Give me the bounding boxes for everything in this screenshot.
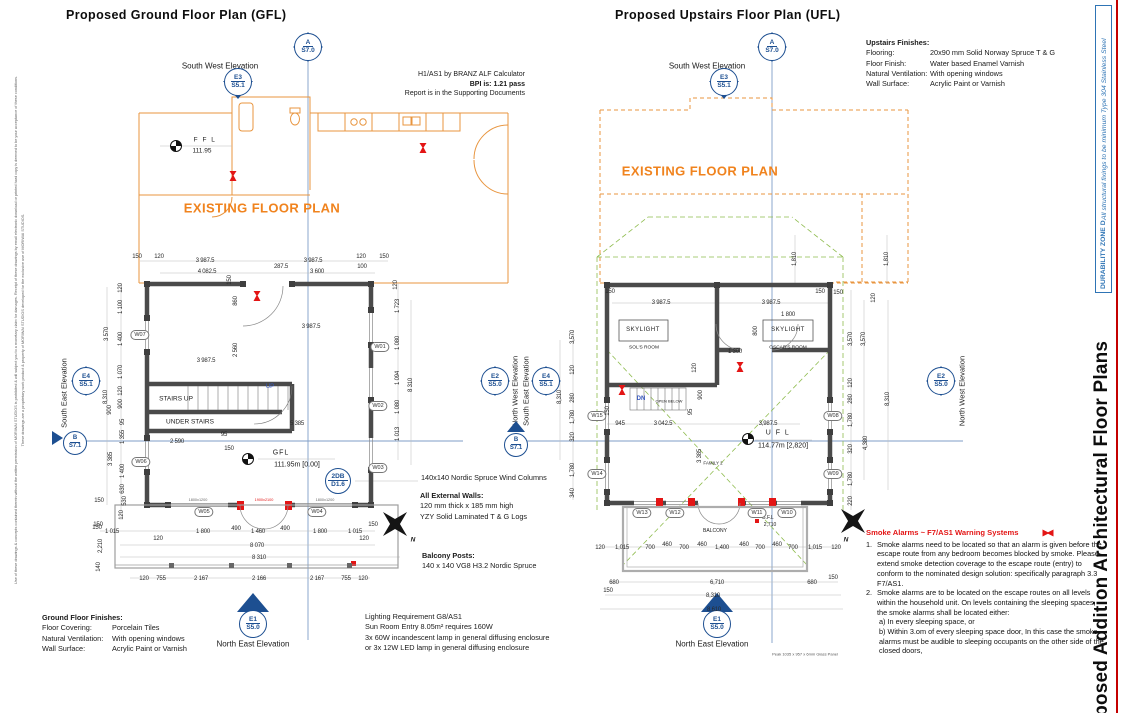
marker-label: A: [303, 39, 314, 47]
dimension-label: 3 987.5: [762, 300, 781, 306]
dimension-label: 3 600: [310, 269, 324, 275]
dimension-label: 280: [848, 394, 854, 403]
dimension-label: 2 167: [194, 576, 208, 582]
dimension-label: 287.5: [274, 264, 288, 270]
detail-marker-2db: 2DBD1.6: [323, 466, 353, 496]
dimension-label: 150: [132, 254, 141, 260]
finish-value: 20x90 mm Solid Norway Spruce T & G: [930, 48, 1055, 58]
family-room-label: FAMILY 2: [703, 461, 722, 466]
finish-row: Flooring:20x90 mm Solid Norway Spruce T …: [866, 48, 1055, 58]
window-size-label: 1800x1200: [316, 498, 335, 502]
lighting-note: Lighting Requirement G8/AS1 Sun Room Ent…: [365, 612, 549, 653]
drawing-sheet: Use of these drawings & concepts contain…: [0, 0, 1121, 713]
dimension-label: 3 987.5: [196, 258, 215, 264]
dimension-label: 95: [120, 419, 126, 425]
finish-row: Wall Surface:Acrylic Paint or Varnish: [42, 644, 187, 654]
dimension-label: 120: [393, 280, 399, 289]
marker-circle: 2DBD1.6: [325, 468, 351, 494]
elevation-label-ne: North East Elevation: [217, 640, 290, 649]
dimension-label: 3 385: [108, 452, 114, 466]
dimension-label: 460: [662, 542, 671, 548]
dimension-label: 2 166: [252, 576, 266, 582]
marker-circle: E3S5.1: [710, 68, 738, 96]
dimension-label: 1,780: [570, 463, 576, 477]
marker-sheet: D1.6: [331, 481, 345, 489]
finish-value: Water based Enamel Varnish: [930, 59, 1024, 69]
window-label-w02: W02: [368, 401, 387, 411]
dimension-label: 150: [227, 275, 233, 284]
elevation-label-nw: North West Elevation: [958, 356, 967, 426]
dimension-label: 120: [831, 545, 840, 551]
smoke-alarms-note: Smoke Alarms ~ F7/AS1 Warning Systems 1.…: [866, 528, 1104, 656]
balcony-posts-line: 140 x 140 VG8 H3.2 Nordic Spruce: [422, 561, 536, 571]
durability-zone-label: DURABILITY ZONE D: [1100, 220, 1107, 289]
elevation-marker-e4: E4S5.1: [71, 366, 101, 396]
dimension-label: 150: [605, 289, 614, 295]
dimension-label: 8,310: [103, 390, 109, 404]
dimension-label: 150: [605, 406, 611, 415]
dimension-label: 1 400: [120, 464, 126, 478]
gfl-level-icon: [242, 453, 254, 465]
gfl-balcony-posts: [169, 563, 352, 568]
sols-room-label: SOL'S ROOM: [629, 346, 659, 351]
dimension-label: 700: [788, 545, 797, 551]
dimension-label: 3,570: [861, 332, 867, 346]
dimension-label: 120: [359, 536, 368, 542]
marker-circle: E1S5.0: [703, 610, 731, 638]
dimension-label: 3,570: [848, 332, 854, 346]
dimension-label: 1 400: [118, 332, 124, 346]
dimension-label: 150: [224, 446, 233, 452]
copyright-disclaimer-2: These drawings are a proprietary work pr…: [21, 214, 25, 447]
finish-key: Natural Ventilation:: [866, 69, 930, 79]
dimension-label: 150: [379, 254, 388, 260]
dimension-label: 220: [848, 496, 854, 505]
dimension-label: 8,310: [557, 390, 563, 404]
dimension-label: 3,570: [570, 330, 576, 344]
elevation-marker-e3: E3S5.1: [223, 67, 253, 97]
dimension-label: 700: [755, 545, 764, 551]
dimension-label: 900: [107, 405, 113, 414]
dimension-label: 1 355: [120, 430, 126, 444]
elevation-label-nw: North West Elevation: [511, 356, 520, 426]
dimension-label: 3 385: [697, 449, 703, 463]
dimension-label: 120: [139, 576, 148, 582]
stairs-up-direction: UP: [266, 384, 274, 390]
marker-label: E2: [488, 373, 502, 381]
dimension-label: 2,210: [98, 539, 104, 553]
dimension-label: 700: [679, 545, 688, 551]
finish-row: Floor Finish:Water based Enamel Varnish: [866, 59, 1055, 69]
sheet-edge-rule: [1116, 0, 1118, 713]
dimension-label: 150: [93, 522, 102, 528]
dimension-label: 1 800: [196, 529, 210, 535]
finish-value: Porcelain Tiles: [112, 623, 159, 633]
copyright-disclaimer: Use of these drawings & concepts contain…: [14, 76, 18, 584]
ufl-level-icon: [742, 433, 754, 445]
external-walls-line: 120 mm thick x 185 mm high: [420, 501, 527, 511]
dimension-label: 120: [153, 536, 162, 542]
dimension-label: 700: [645, 545, 654, 551]
marker-sheet: S5.1: [231, 82, 244, 90]
north-label: N: [844, 537, 849, 544]
grid-marker-a: AS7.0: [757, 32, 787, 62]
sheet-title: Proposed Addition Architectural Floor Pl…: [1091, 341, 1113, 713]
marker-sheet: S5.0: [934, 381, 947, 389]
marker-circle: E4S5.1: [72, 367, 100, 395]
marker-sheet: S7.1: [69, 443, 81, 451]
balcony-posts-note: Balcony Posts: 140 x 140 VG8 H3.2 Nordic…: [422, 551, 536, 572]
dimension-label: 150: [833, 290, 842, 296]
dimension-label: 340: [570, 488, 576, 497]
window-label-w12: W12: [665, 508, 684, 518]
branz-line3: Report is in the Supporting Documents: [345, 89, 525, 99]
dimension-label: 6,710: [710, 580, 724, 586]
window-label-w06: W06: [131, 457, 150, 467]
marker-sheet: S5.1: [539, 381, 552, 389]
dimension-label: 150: [828, 575, 837, 581]
wind-columns-note: 140x140 Nordic Spruce Wind Columns: [421, 473, 547, 482]
dimension-label: 120: [570, 365, 576, 374]
dimension-label: 1,810: [792, 252, 798, 266]
dimension-label: 3 987.5: [302, 324, 321, 330]
dimension-label: 1,400: [715, 545, 729, 551]
dimension-label: 120: [119, 510, 125, 519]
marker-sheet: S5.0: [710, 624, 723, 632]
dimension-label: 490: [231, 526, 240, 532]
dimension-label: 1 800: [313, 529, 327, 535]
marker-sheet: S7.0: [301, 47, 314, 55]
bfl-value: 2,710: [764, 522, 777, 528]
marker-circle: AS7.0: [758, 33, 786, 61]
external-walls-note: All External Walls: 120 mm thick x 185 m…: [420, 491, 527, 522]
dimension-label: 530: [122, 496, 128, 505]
dimension-label: 8 310: [252, 555, 266, 561]
dimension-label: 1 300: [728, 349, 742, 355]
window-label-w10: W10: [777, 508, 796, 518]
durability-note: DURABILITY ZONE D All structural fixings…: [1095, 5, 1112, 293]
finish-value: With opening windows: [930, 69, 1003, 79]
finish-value: Acrylic Paint or Varnish: [112, 644, 187, 654]
marker-sheet: S5.1: [717, 82, 730, 90]
smoke-item: 2.Smoke alarms are to be located on the …: [866, 588, 1104, 617]
external-walls-line: YZY Solid Laminated T & G Logs: [420, 512, 527, 522]
dimension-label: 320: [570, 432, 576, 441]
oscars-room-label: OSCAR'S ROOM: [769, 346, 806, 351]
dimension-label: 680: [609, 580, 618, 586]
ufl-level-label: U F L: [766, 430, 791, 437]
marker-label: E2: [934, 373, 948, 381]
dimension-label: 120: [848, 378, 854, 387]
list-number: 1.: [866, 540, 877, 589]
dimension-label: 490: [280, 526, 289, 532]
dimension-label: 1,810: [884, 252, 890, 266]
dimension-label: 150: [94, 498, 103, 504]
finish-key: Flooring:: [866, 48, 930, 58]
marker-circle: E2S5.0: [481, 367, 509, 395]
smoke-alarms-heading: Smoke Alarms ~ F7/AS1 Warning Systems: [866, 528, 1104, 538]
elevation-marker-e1: E1S5.0: [238, 609, 268, 639]
branz-note: H1/AS1 by BRANZ ALF Calculator BPI is: 1…: [345, 70, 525, 99]
dimension-label: 120: [692, 363, 698, 372]
window-label-w05: W05: [194, 507, 213, 517]
dimension-label: 120: [118, 283, 124, 292]
ffl-value: 111.95: [193, 148, 212, 155]
elevation-label-ne: North East Elevation: [676, 640, 749, 649]
gfl-plan-title: Proposed Ground Floor Plan (GFL): [66, 8, 286, 22]
dimension-label: 1 080: [395, 336, 401, 350]
smoke-item: 1.Smoke alarms need to be located so tha…: [866, 540, 1104, 589]
finish-row: Wall Surface:Acrylic Paint or Varnish: [866, 79, 1055, 89]
stairs-down-direction: DN: [637, 396, 646, 402]
dimension-label: 8,310: [885, 392, 891, 406]
finish-row: Natural Ventilation:With opening windows: [866, 69, 1055, 79]
dimension-label: 120: [118, 386, 124, 395]
elevation-label-se: South East Elevation: [522, 356, 531, 426]
stairs-up-label: STAIRS UP: [159, 396, 193, 403]
window-size-label: 1800x1200: [189, 498, 208, 502]
gfl-door-arcs: [240, 286, 288, 529]
dimension-label: 3 570: [104, 327, 110, 341]
skylight-label: SKYLIGHT: [771, 327, 805, 333]
marker-label: 2DB: [328, 473, 347, 481]
dimension-label: 2 560: [233, 343, 239, 357]
grid-marker-a: AS7.0: [293, 32, 323, 62]
dimension-label: 1 723: [395, 299, 401, 313]
grid-marker-b: BS7.1: [60, 428, 90, 458]
ufl-existing-outline: [600, 98, 908, 283]
door-size-label: 1900x2100: [255, 498, 274, 502]
finish-key: Floor Covering:: [42, 623, 112, 633]
ufl-existing-plan-label: EXISTING FLOOR PLAN: [622, 164, 778, 179]
dimension-label: 1,780: [570, 410, 576, 424]
dimension-label: 460: [772, 542, 781, 548]
list-number: 2.: [866, 588, 877, 617]
dimension-label: 3,987.5: [759, 421, 778, 427]
ufl-plan-title: Proposed Upstairs Floor Plan (UFL): [615, 8, 840, 22]
dimension-label: 1,780: [848, 413, 854, 427]
window-label-w03: W03: [368, 463, 387, 473]
dimension-label: 8 310: [408, 378, 414, 392]
marker-sheet: S5.0: [488, 381, 501, 389]
dimension-label: 140: [96, 562, 102, 571]
marker-sheet: S7.1: [510, 445, 522, 453]
dimension-label: 2 167: [310, 576, 324, 582]
gfl-level-value: 111.95m [0.00]: [274, 462, 320, 469]
dimension-label: 120: [154, 254, 163, 260]
elevation-marker-e2: E2S5.0: [926, 366, 956, 396]
marker-sheet: S5.0: [246, 624, 259, 632]
dimension-label: 150: [815, 289, 824, 295]
marker-circle: BS7.1: [504, 433, 528, 457]
skylight-label: SKYLIGHT: [626, 327, 660, 333]
marker-circle: E2S5.0: [927, 367, 955, 395]
dimension-label: 945: [615, 421, 624, 427]
glass-panel-note: Peak 1035 x 957 x 6mm Glass Panel: [772, 652, 838, 657]
dimension-label: 1 460: [251, 529, 265, 535]
dimension-label: 1 013: [395, 427, 401, 441]
dimension-label: 3 987.5: [197, 358, 216, 364]
marker-triangle: [52, 431, 63, 445]
durability-zone-text: All structural fixings to be minimum Typ…: [1101, 39, 1108, 221]
window-label-w13: W13: [632, 508, 651, 518]
window-label-w11: W11: [748, 508, 767, 518]
lighting-line: 3x 60W incandescent lamp in general diff…: [365, 633, 549, 643]
dimension-label: 755: [156, 576, 165, 582]
balcony-label: BALCONY: [703, 528, 727, 534]
dimension-label: 1,015: [808, 545, 822, 551]
dimension-label: 3 042.5: [654, 421, 673, 427]
dimension-label: 1 070: [118, 365, 124, 379]
elevation-label-se: South East Elevation: [60, 358, 69, 428]
window-label-w09: W09: [823, 469, 842, 479]
gfl-level-label: GFL: [273, 450, 290, 457]
ffl-label: F F L: [194, 137, 217, 144]
marker-label: A: [767, 39, 778, 47]
window-label-w08: W08: [823, 411, 842, 421]
branz-line1: H1/AS1 by BRANZ ALF Calculator: [345, 70, 525, 80]
dimension-label: 900: [118, 399, 124, 408]
finish-value: Acrylic Paint or Varnish: [930, 79, 1005, 89]
dimension-label: 8,310: [706, 593, 720, 599]
grid-marker-b: BS7.1: [501, 430, 531, 460]
dimension-label: 120: [356, 254, 365, 260]
finish-key: Wall Surface:: [866, 79, 930, 89]
window-label-w01: W01: [370, 342, 389, 352]
dimension-label: 95: [221, 432, 227, 438]
dimension-label: 800: [753, 326, 759, 335]
elevation-marker-e1: E1S5.0: [702, 609, 732, 639]
dimension-label: 1 094: [395, 371, 401, 385]
dimension-label: 95: [688, 409, 694, 415]
north-label: N: [411, 537, 416, 544]
dimension-label: 320: [848, 444, 854, 453]
dimension-label: 150: [603, 588, 612, 594]
dimension-label: 460: [739, 542, 748, 548]
upstairs-finishes: Upstairs Finishes: Flooring:20x90 mm Sol…: [866, 38, 1055, 89]
smoke-item-text: Smoke alarms are to be located on the es…: [877, 588, 1104, 617]
dimension-label: 8,610: [707, 607, 721, 613]
dimension-label: 2 590: [170, 439, 184, 445]
dimension-label: 1 080: [395, 400, 401, 414]
dimension-label: 3 987.5: [652, 300, 671, 306]
dimension-label: 1,015: [615, 545, 629, 551]
marker-circle: BS7.1: [63, 431, 87, 455]
gfl-existing-walls: [139, 97, 508, 283]
marker-circle: E4S5.1: [532, 367, 560, 395]
smoke-sub-item: a) In every sleeping space, or: [879, 617, 1104, 627]
smoke-item-text: Smoke alarms need to be located so that …: [877, 540, 1104, 589]
dimension-label: 1 015: [348, 529, 362, 535]
dimension-label: 120: [595, 545, 604, 551]
dimension-label: 900: [698, 390, 704, 399]
gfl-existing-plan-label: EXISTING FLOOR PLAN: [184, 201, 340, 216]
dimension-label: 3 987.5: [304, 258, 323, 264]
dimension-label: 755: [341, 576, 350, 582]
ground-finishes: Ground Floor Finishes: Floor Covering:Po…: [42, 613, 187, 654]
ufl-level-value: 114.77m [2,820]: [758, 443, 808, 450]
dimension-label: 1 015: [105, 529, 119, 535]
window-label-w04: W04: [307, 507, 326, 517]
dimension-label: 4,380: [863, 436, 869, 450]
window-label-w14: W14: [587, 469, 606, 479]
marker-label: B: [70, 435, 80, 443]
marker-label: E4: [539, 373, 553, 381]
dimension-label: 120: [871, 293, 877, 302]
dimension-label: 630: [120, 484, 126, 493]
balcony-posts-heading: Balcony Posts:: [422, 551, 536, 561]
external-walls-heading: All External Walls:: [420, 491, 527, 501]
marker-label: B: [511, 437, 521, 445]
marker-triangle: [507, 421, 525, 432]
window-label-w15: W15: [587, 411, 606, 421]
marker-sheet: S7.0: [765, 47, 778, 55]
lighting-line: or 3x 12W LED lamp in general diffusing …: [365, 643, 549, 653]
ground-finishes-heading: Ground Floor Finishes:: [42, 613, 187, 623]
ffl-level-icon: [170, 140, 182, 152]
finish-value: With opening windows: [112, 634, 185, 644]
dimension-label: 4 082.5: [198, 269, 217, 275]
dimension-label: 460: [697, 542, 706, 548]
finish-key: Natural Ventilation:: [42, 634, 112, 644]
dimension-label: 100: [357, 264, 366, 270]
lighting-line: Lighting Requirement G8/AS1: [365, 612, 549, 622]
dimension-label: 5 385: [290, 421, 304, 427]
finish-key: Floor Finish:: [866, 59, 930, 69]
dimension-label: 280: [570, 393, 576, 402]
dimension-label: 8 070: [250, 543, 264, 549]
dimension-label: 1,780: [848, 472, 854, 486]
marker-label: E1: [710, 616, 724, 624]
finish-row: Floor Covering:Porcelain Tiles: [42, 623, 187, 633]
dimension-label: 120: [358, 576, 367, 582]
marker-label: E3: [231, 74, 245, 82]
marker-circle: E1S5.0: [239, 610, 267, 638]
dimension-label: 680: [807, 580, 816, 586]
dimension-label: 1 100: [118, 300, 124, 314]
open-below-label: OPEN BELOW: [656, 399, 683, 404]
finish-row: Natural Ventilation:With opening windows: [42, 634, 187, 644]
upstairs-finishes-heading: Upstairs Finishes:: [866, 38, 1055, 48]
finish-key: Wall Surface:: [42, 644, 112, 654]
elevation-marker-e2: E2S5.0: [480, 366, 510, 396]
marker-label: E4: [79, 373, 93, 381]
window-label-w07: W07: [130, 330, 149, 340]
smoke-sub-item: b) Within 3.om of every sleeping space d…: [879, 627, 1104, 656]
branz-line2: BPI is: 1.21 pass: [345, 80, 525, 90]
under-stairs-label: UNDER STAIRS: [166, 419, 214, 426]
lighting-line: Sun Room Entry 8.05m² requires 160W: [365, 622, 549, 632]
marker-label: E3: [717, 74, 731, 82]
marker-sheet: S5.1: [79, 381, 92, 389]
dimension-label: 1 800: [781, 312, 795, 318]
marker-circle: E3S5.1: [224, 68, 252, 96]
marker-circle: AS7.0: [294, 33, 322, 61]
dimension-label: 150: [368, 522, 377, 528]
dimension-label: 860: [233, 296, 239, 305]
marker-label: E1: [246, 616, 260, 624]
ufl-windows: [606, 400, 832, 504]
elevation-marker-e3: E3S5.1: [709, 67, 739, 97]
